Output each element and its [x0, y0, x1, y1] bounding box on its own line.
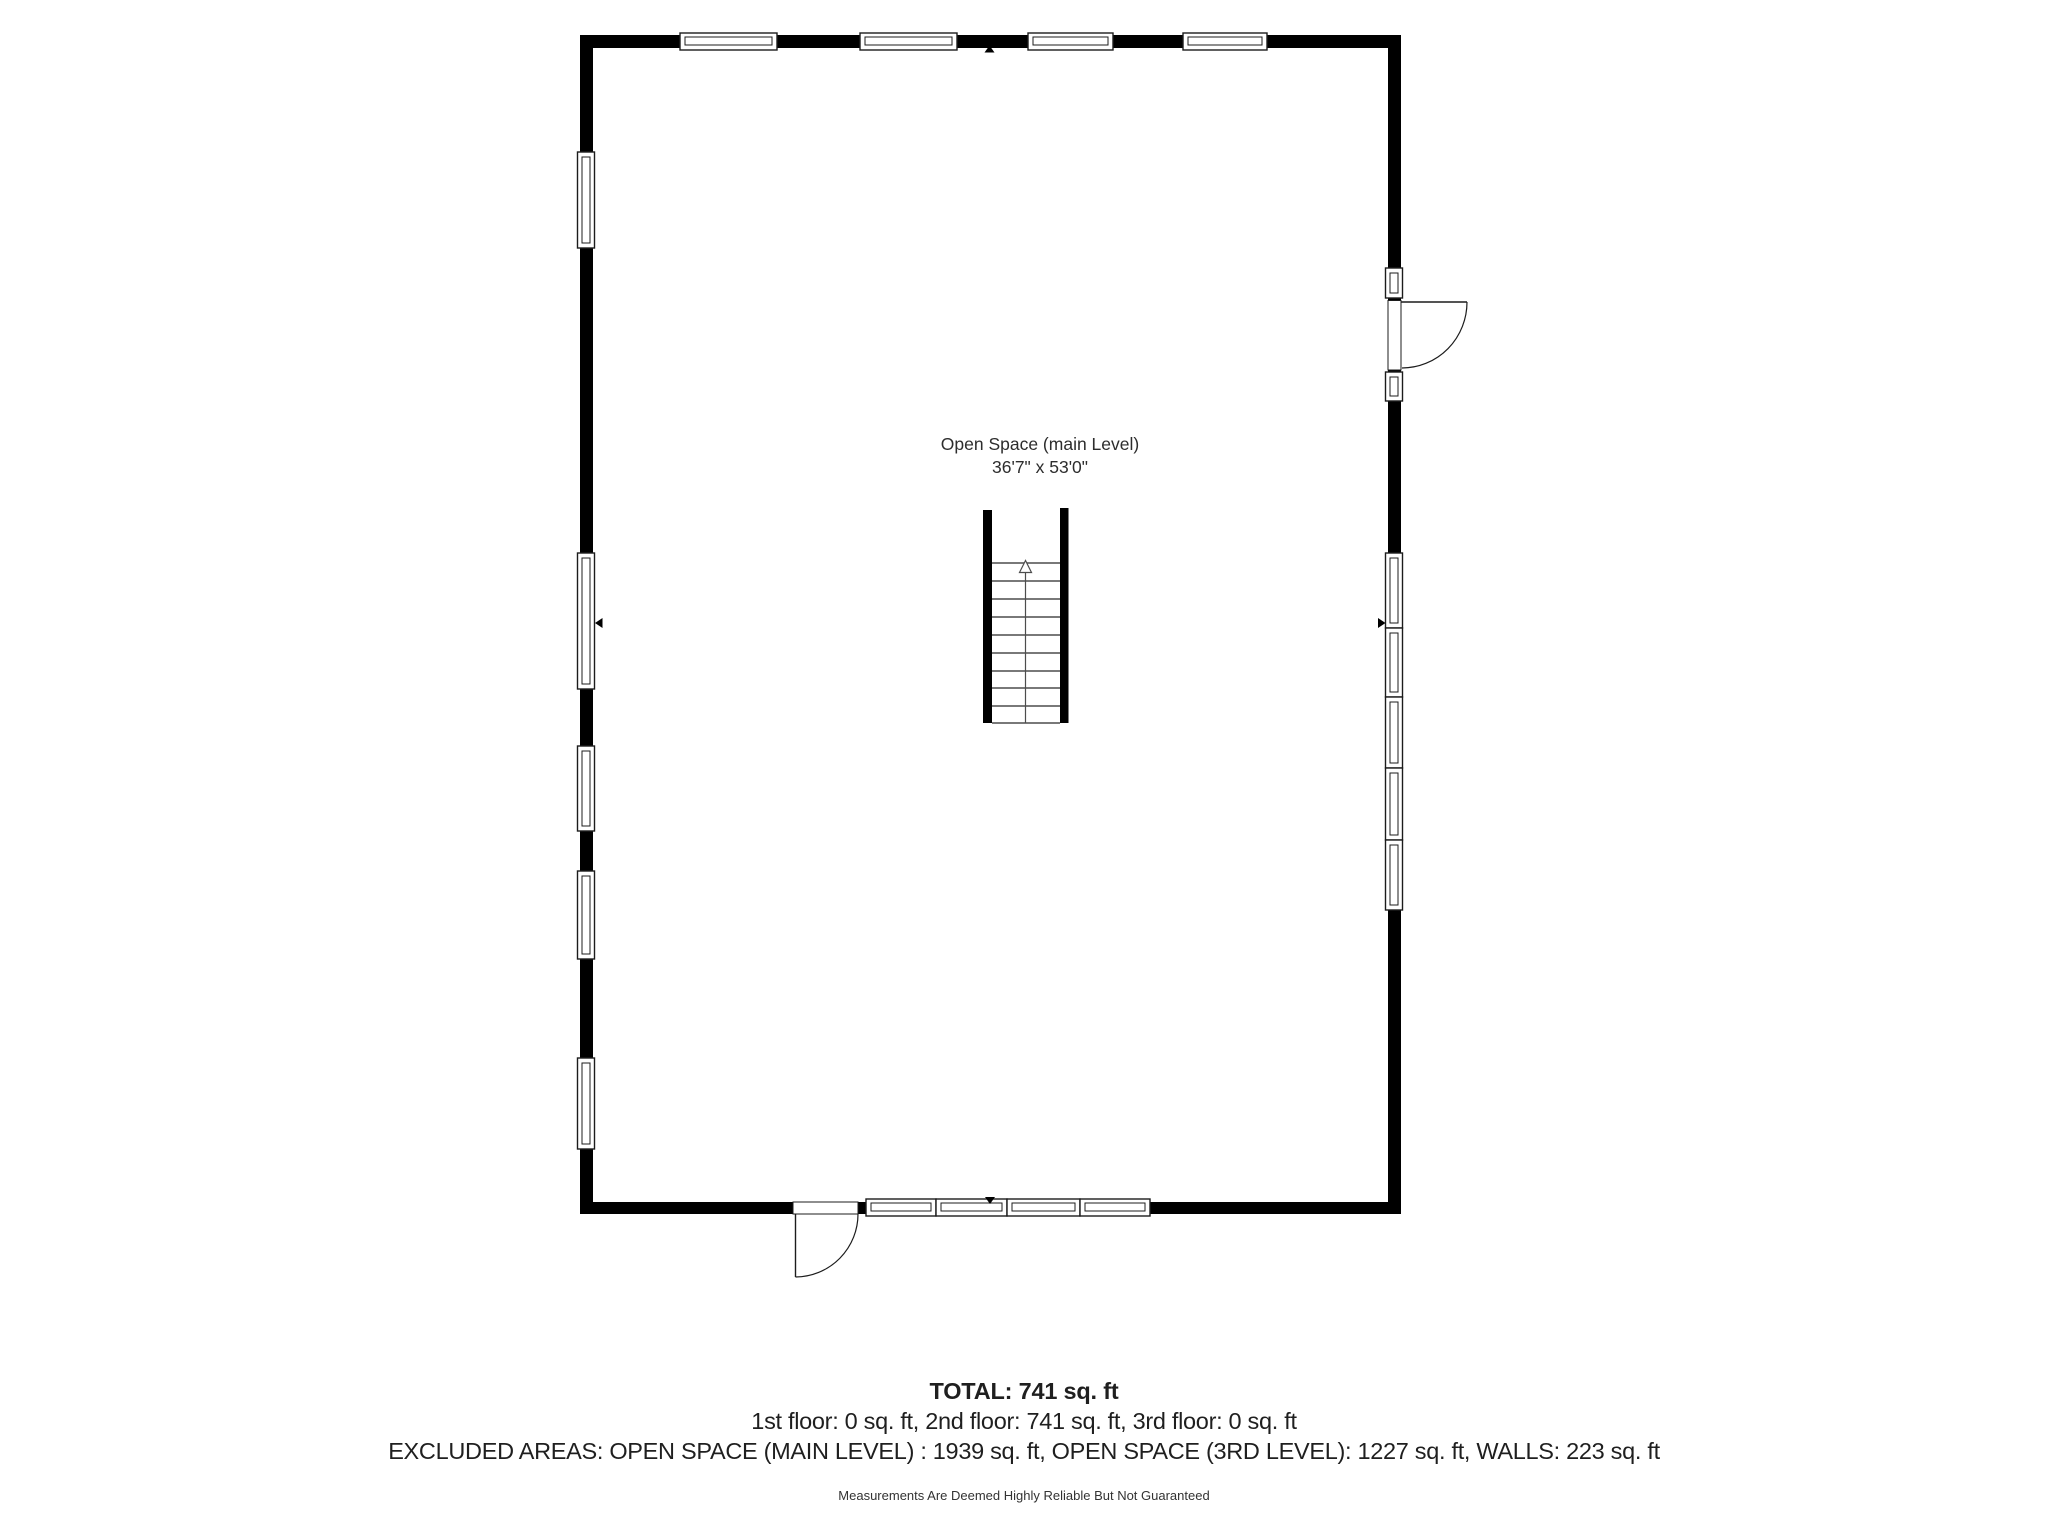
- window: [1386, 768, 1403, 840]
- window: [860, 33, 957, 50]
- wall-segment: [1388, 401, 1401, 553]
- disclaimer-line: Measurements Are Deemed Highly Reliable …: [0, 1488, 2048, 1504]
- wall-segment: [580, 248, 593, 553]
- wall-segment: [777, 35, 860, 48]
- wall-segment: [580, 35, 593, 152]
- window: [936, 1199, 1007, 1216]
- stair-side-wall-right: [1060, 508, 1069, 723]
- west-marker-icon: [595, 618, 603, 628]
- wall-segment: [580, 959, 593, 1058]
- staircase: [983, 508, 1069, 723]
- window: [1183, 33, 1267, 50]
- wall-segment: [580, 1202, 793, 1214]
- total-area-line: TOTAL: 741 sq. ft: [0, 1376, 2048, 1406]
- floor-plan-page: Open Space (main Level) 36'7" x 53'0" TO…: [0, 0, 2048, 1536]
- window: [578, 152, 595, 248]
- room-dimensions: 36'7" x 53'0": [941, 456, 1139, 479]
- floor-breakdown-line: 1st floor: 0 sq. ft, 2nd floor: 741 sq. …: [0, 1406, 2048, 1436]
- wall-segment: [580, 831, 593, 871]
- wall-segment: [1267, 35, 1400, 48]
- wall-segment: [580, 689, 593, 746]
- right-exterior-door: [1388, 301, 1467, 371]
- window: [1386, 553, 1403, 628]
- room-label: Open Space (main Level) 36'7" x 53'0": [941, 433, 1139, 479]
- window: [578, 1058, 595, 1149]
- window: [1386, 840, 1403, 910]
- window: [866, 1199, 936, 1216]
- window: [578, 871, 595, 959]
- stair-side-wall-left: [983, 510, 992, 723]
- wall-segment: [1113, 35, 1183, 48]
- window: [1386, 697, 1403, 768]
- window: [1080, 1199, 1150, 1216]
- door-jamb: [858, 1202, 866, 1214]
- window: [1386, 372, 1403, 401]
- window: [578, 746, 595, 831]
- floor-plan-canvas: [0, 0, 2048, 1536]
- door-opening: [1388, 301, 1401, 371]
- wall-segment: [957, 35, 1028, 48]
- door-swing-arc: [796, 1214, 859, 1277]
- bottom-wall-windows: [866, 1199, 1150, 1216]
- east-marker-icon: [1378, 618, 1386, 628]
- wall-segment: [580, 35, 680, 48]
- excluded-areas-line: EXCLUDED AREAS: OPEN SPACE (MAIN LEVEL) …: [0, 1436, 2048, 1466]
- wall-segment: [1150, 1202, 1400, 1214]
- door-opening: [793, 1202, 858, 1214]
- room-name: Open Space (main Level): [941, 433, 1139, 456]
- window: [578, 553, 595, 689]
- door-swing-arc: [1402, 302, 1467, 368]
- window: [1028, 33, 1113, 50]
- window: [680, 33, 777, 50]
- wall-segment: [1388, 35, 1401, 268]
- bottom-exterior-door: [793, 1202, 858, 1277]
- area-summary: TOTAL: 741 sq. ft 1st floor: 0 sq. ft, 2…: [0, 1376, 2048, 1504]
- wall-segment: [1388, 910, 1401, 1214]
- window: [1386, 628, 1403, 697]
- window: [1007, 1199, 1080, 1216]
